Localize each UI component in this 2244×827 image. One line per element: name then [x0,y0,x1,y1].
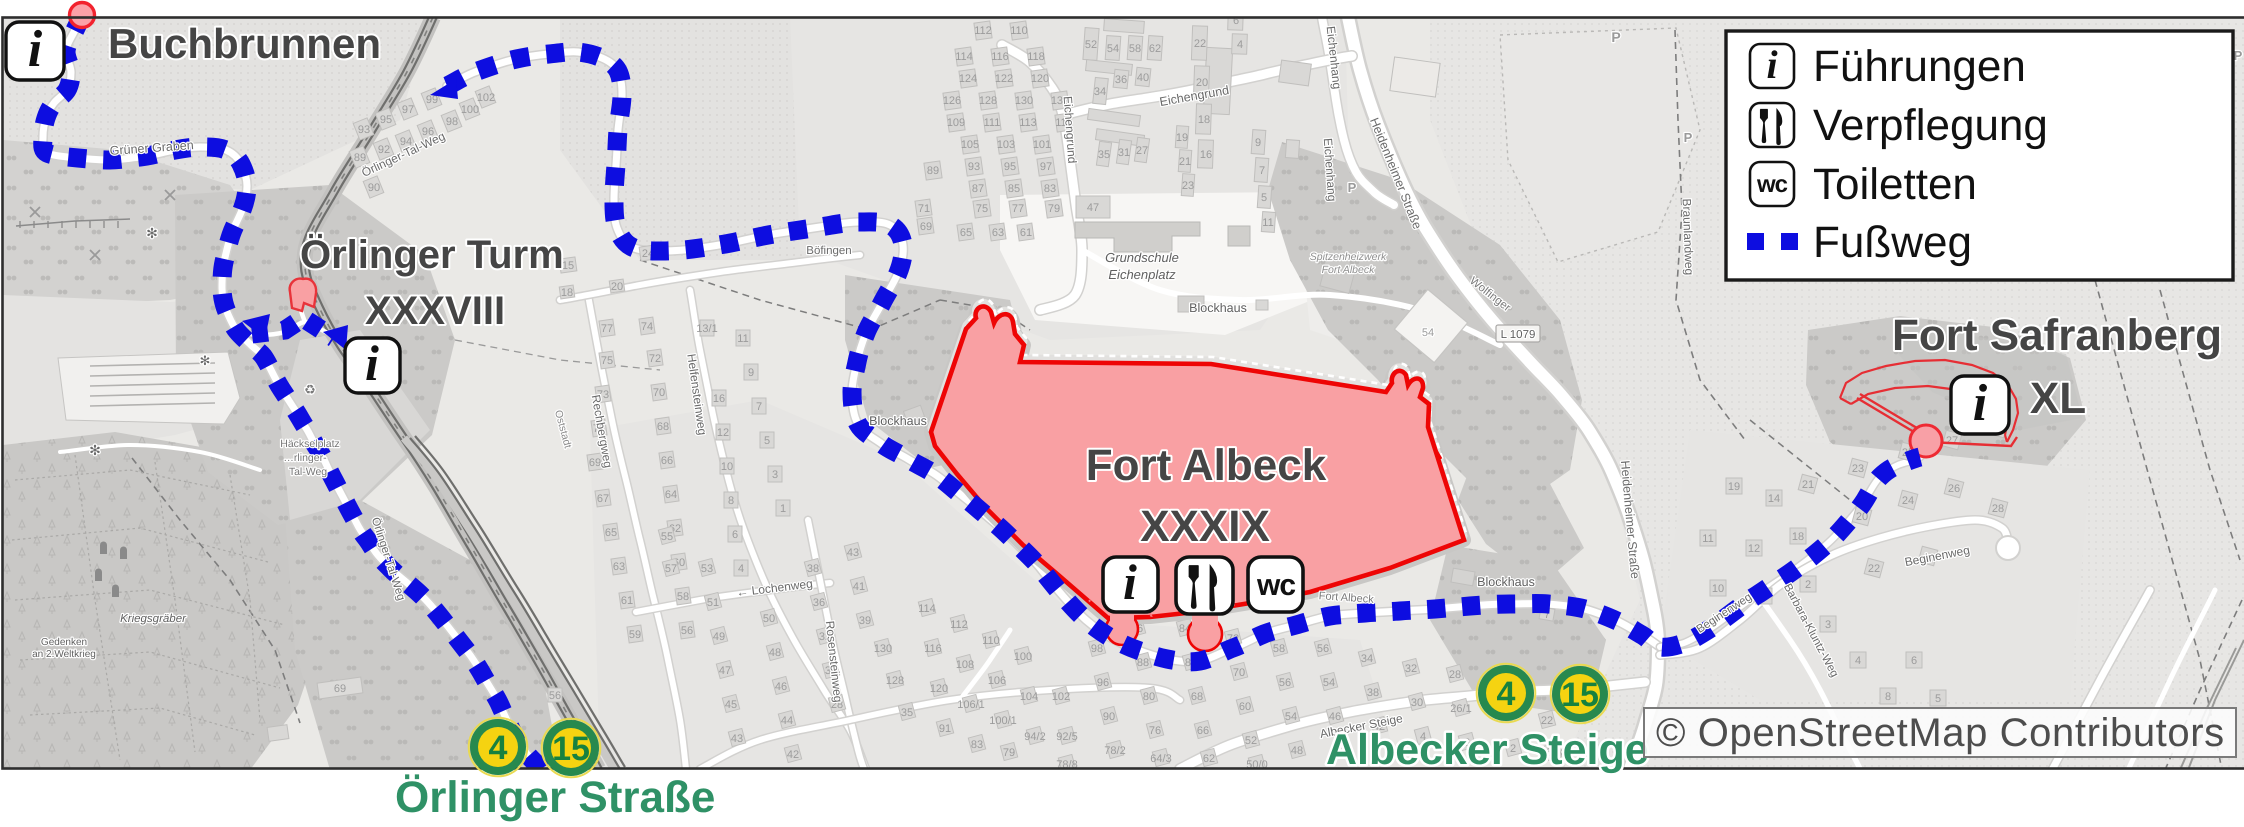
svg-text:✻: ✻ [146,225,158,241]
svg-text:68: 68 [657,421,669,433]
svg-text:28: 28 [1992,503,2004,515]
svg-text:43: 43 [731,733,743,745]
svg-text:22: 22 [1868,563,1880,575]
svg-text:27: 27 [1946,435,1958,447]
svg-text:47: 47 [719,665,731,677]
svg-text:12: 12 [1748,543,1760,555]
svg-text:70: 70 [1233,667,1245,679]
svg-text:Böfingen: Böfingen [806,245,851,257]
svg-text:77: 77 [601,323,613,335]
svg-text:87: 87 [972,183,984,195]
svg-text:18: 18 [1198,114,1210,126]
svg-text:9: 9 [748,367,754,379]
svg-text:✻: ✻ [200,353,211,368]
svg-text:Führungen: Führungen [1813,42,2026,91]
svg-text:62: 62 [1149,43,1161,55]
svg-text:80: 80 [1143,691,1155,703]
svg-text:108: 108 [956,659,974,671]
svg-text:Fort Safranberg: Fort Safranberg [1892,311,2222,360]
svg-text:XL: XL [2030,374,2086,423]
svg-text:110: 110 [1010,25,1028,37]
svg-text:57: 57 [665,563,677,575]
svg-text:85: 85 [1008,183,1020,195]
svg-text:20: 20 [611,281,623,293]
svg-text:111: 111 [984,117,1001,129]
svg-text:Blockhaus: Blockhaus [869,414,927,428]
svg-text:13/1: 13/1 [696,323,717,335]
svg-text:Braunlandweg: Braunlandweg [1680,198,1697,275]
svg-text:91: 91 [939,723,951,735]
svg-text:16: 16 [1200,149,1212,161]
svg-text:3: 3 [1825,619,1831,631]
svg-text:105: 105 [961,139,979,151]
svg-text:114: 114 [955,51,973,63]
svg-text:38: 38 [807,563,819,575]
svg-text:8: 8 [1885,691,1891,703]
svg-text:35: 35 [1098,149,1110,161]
svg-text:2: 2 [1805,579,1811,591]
svg-text:Toiletten: Toiletten [1813,160,1977,209]
svg-text:23: 23 [1182,180,1194,192]
svg-text:89: 89 [354,152,366,164]
svg-text:116: 116 [924,643,942,655]
svg-text:4: 4 [489,729,508,767]
svg-text:58: 58 [677,591,689,603]
svg-text:65: 65 [960,227,972,239]
svg-text:56: 56 [1279,677,1291,689]
svg-text:Blockhaus: Blockhaus [1189,301,1247,315]
svg-text:27: 27 [1136,145,1148,157]
svg-text:96: 96 [1097,677,1109,689]
svg-text:i: i [365,335,379,391]
svg-text:✻: ✻ [89,442,101,458]
svg-text:24: 24 [1902,495,1914,507]
svg-text:© OpenStreetMap Contributors: © OpenStreetMap Contributors [1656,711,2225,755]
svg-text:Albecker Steige: Albecker Steige [1326,726,1649,774]
svg-text:34: 34 [1094,86,1106,98]
svg-text:Fußweg: Fußweg [1813,218,1972,267]
svg-text:54: 54 [1323,677,1335,689]
svg-text:77: 77 [1012,203,1024,215]
svg-text:93: 93 [358,124,370,136]
svg-text:Häckselplatz: Häckselplatz [280,438,340,450]
svg-text:90: 90 [368,182,380,194]
svg-text:64: 64 [665,489,677,501]
svg-text:4: 4 [738,563,744,575]
svg-text:56: 56 [681,625,693,637]
svg-text:61: 61 [621,595,633,607]
svg-text:XXXIX: XXXIX [1140,502,1270,551]
svg-text:79: 79 [1003,747,1015,759]
svg-text:41: 41 [853,581,865,593]
svg-text:100/1: 100/1 [989,715,1017,727]
svg-text:43: 43 [847,547,859,559]
svg-text:35: 35 [901,707,913,719]
svg-text:46: 46 [775,681,787,693]
svg-text:Eichenplatz: Eichenplatz [1108,267,1176,282]
svg-text:Buchbrunnen: Buchbrunnen [108,20,381,67]
svg-text:i: i [1973,375,1988,432]
svg-text:P: P [2234,48,2243,63]
svg-text:114: 114 [918,603,936,615]
svg-text:wc: wc [1756,171,1788,198]
svg-text:22: 22 [1194,38,1206,50]
svg-text:11: 11 [1262,217,1273,229]
svg-text:75: 75 [976,203,988,215]
svg-text:120: 120 [1031,73,1049,85]
svg-text:P: P [1611,29,1620,45]
svg-text:36: 36 [813,597,825,609]
svg-text:26/1: 26/1 [1450,703,1471,715]
svg-text:51: 51 [707,597,719,609]
svg-text:69: 69 [589,457,601,469]
svg-text:78/2: 78/2 [1104,745,1125,757]
svg-text:62: 62 [1203,753,1215,765]
svg-text:88: 88 [1137,657,1149,669]
svg-text:12: 12 [717,427,729,439]
svg-text:102: 102 [477,92,495,104]
svg-text:75: 75 [601,355,613,367]
svg-text:95: 95 [380,114,392,126]
svg-text:66: 66 [1197,725,1209,737]
svg-text:11: 11 [1702,533,1713,545]
svg-text:19: 19 [1176,132,1188,144]
svg-text:56: 56 [1317,643,1329,655]
svg-text:15: 15 [552,730,590,768]
svg-text:60: 60 [1239,701,1251,713]
svg-text:49: 49 [713,631,725,643]
svg-text:104: 104 [1020,691,1038,703]
svg-text:94/2: 94/2 [1024,731,1045,743]
svg-text:7: 7 [756,401,762,413]
svg-text:69: 69 [334,683,346,695]
svg-text:61: 61 [1020,227,1032,239]
svg-text:118: 118 [1027,51,1045,63]
svg-text:P: P [1684,130,1693,145]
svg-text:i: i [1766,42,1777,87]
svg-text:19: 19 [1728,481,1740,493]
svg-text:128: 128 [886,675,904,687]
svg-text:59: 59 [629,629,641,641]
svg-text:Örlinger Turm: Örlinger Turm [300,233,564,277]
svg-text:54: 54 [1107,43,1119,55]
svg-text:90: 90 [1103,711,1115,723]
svg-text:Grundschule: Grundschule [1105,250,1179,265]
svg-text:48: 48 [769,647,781,659]
svg-text:4: 4 [1497,675,1516,713]
svg-text:Kriegsgräber: Kriegsgräber [120,613,187,625]
svg-text:120: 120 [930,683,948,695]
svg-text:6: 6 [1911,655,1917,667]
svg-text:Gedenken: Gedenken [41,637,87,648]
svg-text:28: 28 [1449,669,1461,681]
svg-text:34: 34 [1361,653,1373,665]
svg-text:130: 130 [1015,95,1033,107]
svg-text:Örlinger Straße: Örlinger Straße [395,773,715,822]
svg-text:21: 21 [1179,156,1191,168]
svg-text:54: 54 [1285,711,1297,723]
svg-text:5: 5 [764,435,770,447]
svg-text:106: 106 [988,675,1006,687]
svg-text:7: 7 [1259,165,1265,177]
svg-text:74: 74 [641,321,653,333]
svg-text:52: 52 [1085,39,1097,51]
svg-text:10: 10 [1712,583,1724,595]
svg-text:48: 48 [1291,745,1303,757]
svg-text:100: 100 [461,104,479,116]
svg-text:58: 58 [1129,43,1141,55]
svg-text:113: 113 [1019,117,1037,129]
svg-text:11: 11 [737,333,748,345]
svg-text:130: 130 [874,643,892,655]
svg-text:69: 69 [920,221,932,233]
svg-text:L 1079: L 1079 [1501,329,1536,341]
svg-text:83: 83 [971,739,983,751]
svg-text:45: 45 [725,699,737,711]
svg-text:72: 72 [649,353,661,365]
svg-text:i: i [28,21,43,78]
svg-text:67: 67 [597,493,609,505]
svg-text:i: i [1123,554,1137,610]
svg-text:6: 6 [732,529,738,541]
svg-text:3: 3 [772,469,778,481]
svg-text:Verpflegung: Verpflegung [1813,101,2048,150]
svg-text:124: 124 [959,73,977,85]
svg-text:52: 52 [1245,735,1257,747]
svg-text:16: 16 [713,393,725,405]
svg-text:36: 36 [1115,74,1127,86]
svg-text:112: 112 [974,25,992,37]
svg-text:68: 68 [1191,691,1203,703]
svg-text:71: 71 [918,203,930,215]
svg-text:18: 18 [1792,531,1804,543]
svg-text:63: 63 [992,227,1004,239]
svg-text:5: 5 [1935,693,1941,705]
svg-text:14: 14 [1768,493,1780,505]
svg-text:P: P [1348,180,1357,195]
svg-text:23: 23 [1852,463,1864,475]
svg-text:Blockhaus: Blockhaus [1477,575,1535,589]
svg-text:50: 50 [763,613,775,625]
svg-text:XXXVIII: XXXVIII [365,289,505,333]
svg-text:102: 102 [1052,691,1070,703]
svg-text:89: 89 [927,165,939,177]
svg-text:122: 122 [995,73,1013,85]
svg-text:55: 55 [661,531,673,543]
svg-text:65: 65 [605,527,617,539]
svg-text:Tal-Weg: Tal-Weg [289,466,327,478]
svg-text:58: 58 [1273,643,1285,655]
svg-text:109: 109 [947,117,965,129]
svg-text:21: 21 [1802,479,1814,491]
svg-text:110: 110 [982,635,1000,647]
svg-text:8: 8 [728,495,734,507]
svg-text:70: 70 [653,387,665,399]
svg-text:4: 4 [1855,655,1861,667]
svg-text:112: 112 [950,619,968,631]
svg-text:64/3: 64/3 [1150,753,1171,765]
svg-text:44: 44 [781,715,793,727]
svg-text:101: 101 [1033,139,1051,151]
svg-text:79: 79 [1048,203,1060,215]
svg-text:42: 42 [787,749,799,761]
svg-text:30: 30 [1411,697,1423,709]
svg-text:106/1: 106/1 [957,699,985,711]
svg-text:76: 76 [1149,725,1161,737]
svg-text:Fort Albeck: Fort Albeck [1086,441,1327,490]
svg-text:…rlinger-: …rlinger- [283,452,327,464]
svg-text:Fort Albeck: Fort Albeck [1322,264,1375,276]
svg-text:66: 66 [661,455,673,467]
svg-text:116: 116 [991,51,1009,63]
svg-text:46: 46 [1329,711,1341,723]
svg-text:92/5: 92/5 [1056,731,1077,743]
svg-text:Spitzenheizwerk: Spitzenheizwerk [1310,251,1387,263]
svg-text:38: 38 [1367,687,1379,699]
svg-text:98: 98 [446,116,458,128]
svg-text:40: 40 [1137,72,1149,84]
svg-text:97: 97 [1040,161,1052,173]
svg-text:31: 31 [1118,147,1130,159]
svg-text:15: 15 [1561,676,1599,714]
svg-text:wc: wc [1256,569,1295,602]
svg-text:63: 63 [613,561,625,573]
svg-text:95: 95 [1004,161,1016,173]
svg-text:9: 9 [1255,137,1261,149]
svg-text:53: 53 [701,563,713,575]
svg-text:5: 5 [1261,192,1267,204]
svg-text:103: 103 [997,139,1015,151]
svg-text:18: 18 [561,287,573,299]
svg-text:47: 47 [1087,202,1099,214]
svg-text:♻: ♻ [304,382,316,397]
svg-text:54: 54 [1422,327,1434,339]
svg-text:26: 26 [1948,483,1960,495]
svg-text:4: 4 [1237,39,1243,51]
svg-text:56: 56 [549,690,561,702]
svg-text:126: 126 [943,95,961,107]
svg-text:32: 32 [1405,663,1417,675]
svg-text:83: 83 [1044,183,1056,195]
svg-text:97: 97 [402,104,414,116]
svg-text:39: 39 [859,615,871,627]
svg-text:128: 128 [979,95,997,107]
svg-text:1: 1 [780,503,786,515]
svg-text:10: 10 [721,461,733,473]
svg-text:100: 100 [1014,651,1032,663]
svg-text:98: 98 [1091,643,1103,655]
svg-text:93: 93 [968,161,980,173]
svg-text:an 2.Weltkrieg: an 2.Weltkrieg [32,649,96,660]
